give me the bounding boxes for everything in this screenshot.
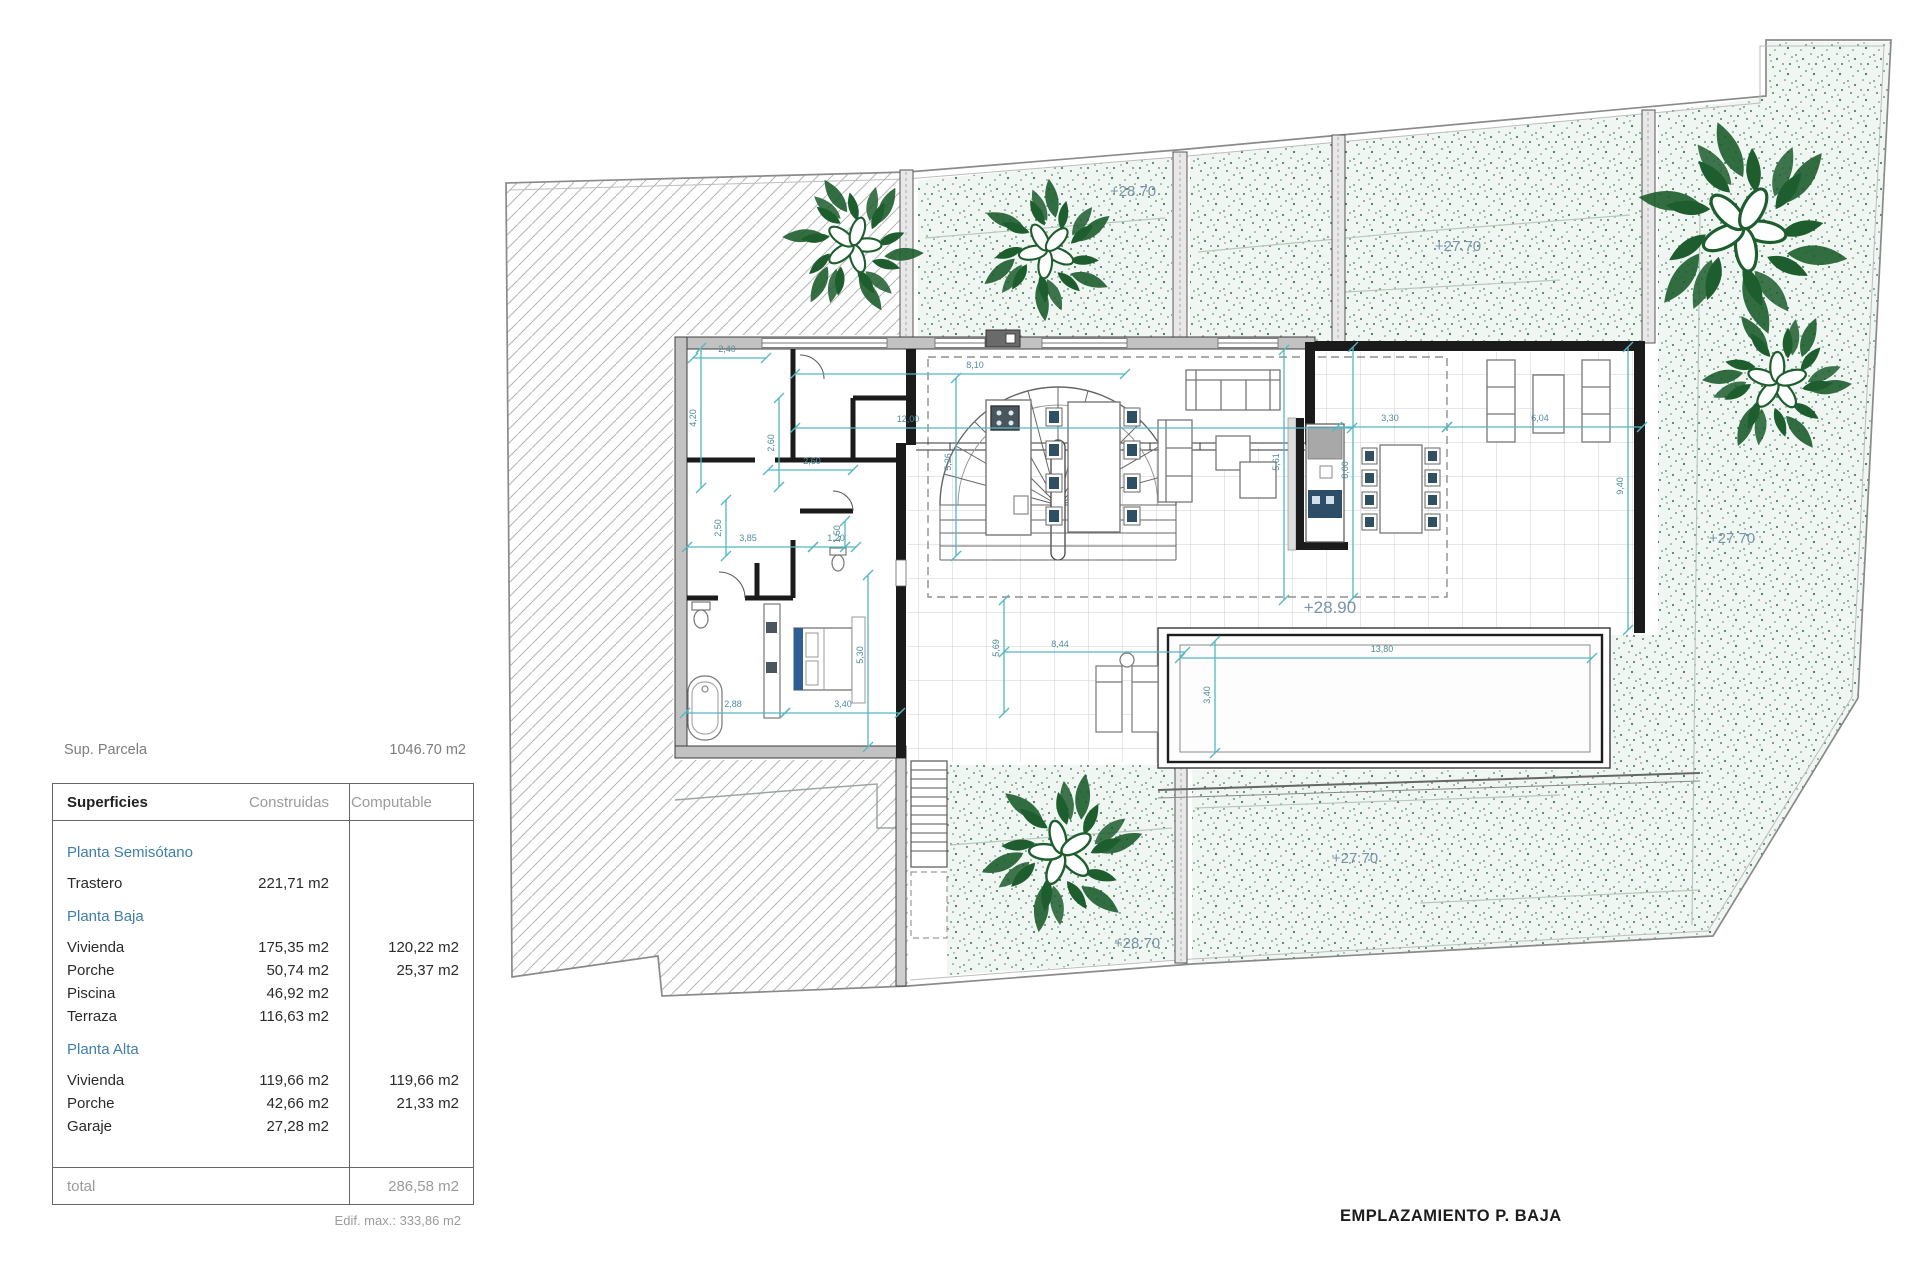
table-cell: 46,92 m2	[203, 985, 339, 1002]
header-construidas: Construidas	[203, 794, 339, 811]
section-title: Planta Semisótano	[53, 844, 473, 866]
table-row: Terraza116,63 m2	[53, 1005, 473, 1028]
total-label: total	[53, 1178, 349, 1195]
dimension-text: 2,60	[766, 434, 776, 452]
table-cell: Porche	[53, 962, 203, 979]
table-row: Trastero221,71 m2	[53, 872, 473, 895]
table-cell: Trastero	[53, 875, 203, 892]
dimension-text: 5,69	[991, 639, 1001, 657]
parcel-summary: Sup. Parcela 1046.70 m2	[52, 742, 474, 764]
column-divider	[349, 784, 350, 1204]
table-cell: 120,22 m2	[339, 939, 473, 956]
table-header: Superficies Construidas Computable	[53, 784, 473, 821]
total-value: 286,58 m2	[349, 1178, 473, 1195]
dimension-text: 3,85	[739, 533, 757, 543]
edif-max-note: Edif. max.: 333,86 m2	[52, 1213, 474, 1231]
table-cell: 42,66 m2	[203, 1095, 339, 1112]
elevation-label: +28.70	[1110, 183, 1156, 200]
elevation-label: +28.70	[1114, 935, 1160, 952]
dimension: 2,60	[766, 393, 784, 492]
table-cell: Porche	[53, 1095, 203, 1112]
table-body: Planta SemisótanoTrastero221,71 m2Planta…	[53, 821, 473, 1138]
elevation-label: +27.70	[1332, 850, 1378, 867]
table-cell: 221,71 m2	[203, 875, 339, 892]
table-cell: Vivienda	[53, 1072, 203, 1089]
dimension-text: 9,40	[1615, 477, 1625, 495]
table-cell: 25,37 m2	[339, 962, 473, 979]
table-cell: 27,28 m2	[203, 1118, 339, 1135]
table-row: Vivienda175,35 m2120,22 m2	[53, 936, 473, 959]
elevation-label: +27.70	[1709, 530, 1755, 547]
dimension-text: 3,40	[1202, 686, 1212, 704]
dimension-text: 3,30	[1381, 413, 1399, 423]
site-plan-sheet: 2,404,202,602,602,503,851,201,508,105,26…	[0, 0, 1920, 1280]
header-computable: Computable	[339, 794, 473, 811]
plan-title: EMPLAZAMIENTO P. BAJA	[1340, 1207, 1562, 1225]
dimension-text: 8,10	[966, 360, 984, 370]
table-cell: Piscina	[53, 985, 203, 1002]
dimension: 5,30	[855, 570, 873, 752]
table-cell: 119,66 m2	[203, 1072, 339, 1089]
table-cell: Garaje	[53, 1118, 203, 1135]
dimension-text: 13,80	[1371, 644, 1394, 654]
dimension: 8,10	[790, 360, 1130, 379]
table-cell: Vivienda	[53, 939, 203, 956]
dimension-text: 2,88	[724, 699, 742, 709]
elevation-label: +27.70	[1435, 238, 1481, 255]
dimension-text: 5,26	[943, 453, 953, 471]
fireplace	[986, 330, 1020, 347]
section-title: Planta Alta	[53, 1041, 473, 1063]
hatched-terrain	[506, 172, 908, 996]
table-cell: 175,35 m2	[203, 939, 339, 956]
dimension: 2,50	[713, 495, 731, 561]
dimension-text: 5,61	[1271, 453, 1281, 471]
table-row: Garaje27,28 m2	[53, 1115, 473, 1138]
parcel-label: Sup. Parcela	[64, 742, 147, 764]
table-row: Piscina46,92 m2	[53, 982, 473, 1005]
dimension: 4,20	[688, 343, 706, 493]
dimension: 3,85	[682, 533, 818, 552]
outdoor-kitchen	[1288, 418, 1348, 550]
header-superficies: Superficies	[53, 794, 203, 811]
table-cell: 50,74 m2	[203, 962, 339, 979]
surfaces-table: Superficies Construidas Computable Plant…	[52, 783, 474, 1205]
elevation-label: +28.90	[1304, 598, 1356, 617]
parcel-value: 1046.70 m2	[389, 742, 466, 764]
plan-title-group: EMPLAZAMIENTO P. BAJA	[1340, 1207, 1562, 1225]
table-cell: 116,63 m2	[203, 1008, 339, 1025]
dimension: 3,40	[780, 699, 905, 718]
dimension-text: 1,50	[832, 525, 842, 543]
dimension-text: 8,44	[1051, 639, 1069, 649]
table-cell: 21,33 m2	[339, 1095, 473, 1112]
section-title: Planta Baja	[53, 908, 473, 930]
exterior-stairs	[911, 761, 947, 938]
dimension-text: 6,04	[1531, 413, 1549, 423]
dimension-text: 5,30	[855, 646, 865, 664]
dimension-text: 2,50	[713, 519, 723, 537]
table-row: Vivienda119,66 m2119,66 m2	[53, 1069, 473, 1092]
kitchen-island	[986, 400, 1031, 535]
table-cell: 119,66 m2	[339, 1072, 473, 1089]
dimension-text: 8,00	[1340, 461, 1350, 479]
dimension-text: 2,60	[803, 456, 821, 466]
total-row: total 286,58 m2	[53, 1167, 473, 1204]
surfaces-panel: Sup. Parcela 1046.70 m2 Superficies Cons…	[52, 742, 474, 1231]
dimension-text: 3,40	[834, 699, 852, 709]
dimension-text: 12,00	[897, 414, 920, 424]
table-row: Porche42,66 m221,33 m2	[53, 1092, 473, 1115]
dimension-text: 2,40	[718, 344, 736, 354]
table-row: Porche50,74 m225,37 m2	[53, 959, 473, 982]
table-cell: Terraza	[53, 1008, 203, 1025]
interior-partitions	[687, 349, 906, 598]
dimension-text: 4,20	[688, 409, 698, 427]
